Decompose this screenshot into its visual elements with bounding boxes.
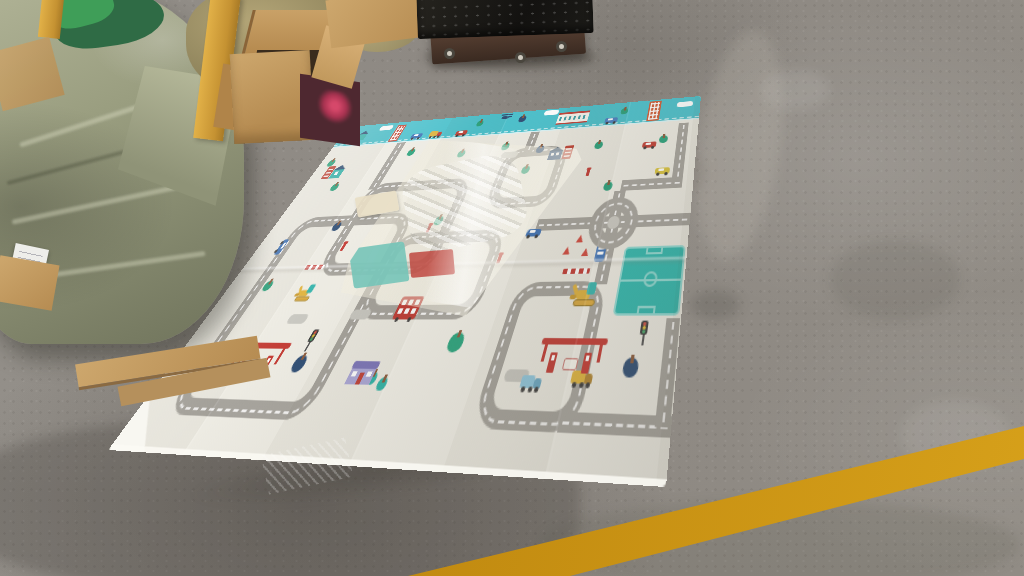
cardboard-piece	[0, 255, 60, 311]
road-segment	[620, 177, 683, 191]
floor-stain	[830, 240, 960, 320]
floor-stain	[690, 290, 740, 320]
platform-scale	[416, 0, 593, 39]
caster-wheel	[515, 52, 526, 63]
floor-light-patch	[684, 26, 795, 265]
caster-wheel	[556, 41, 567, 52]
roundabout	[583, 196, 642, 250]
traffic-cone	[562, 247, 571, 255]
soccer-field	[612, 245, 685, 316]
car	[642, 141, 657, 148]
traffic-light	[638, 321, 650, 346]
gas-station	[531, 338, 608, 383]
warehouse-floor	[0, 0, 1024, 576]
car	[655, 167, 671, 174]
traffic-cone	[576, 235, 585, 243]
caster-wheel	[444, 48, 455, 59]
box-print-graphic	[318, 88, 352, 127]
fence	[562, 268, 590, 274]
excavator	[570, 281, 604, 306]
house-pair	[319, 159, 352, 180]
hydrant-marker	[586, 169, 591, 176]
yellow-strap	[38, 0, 64, 39]
fence	[304, 265, 325, 270]
